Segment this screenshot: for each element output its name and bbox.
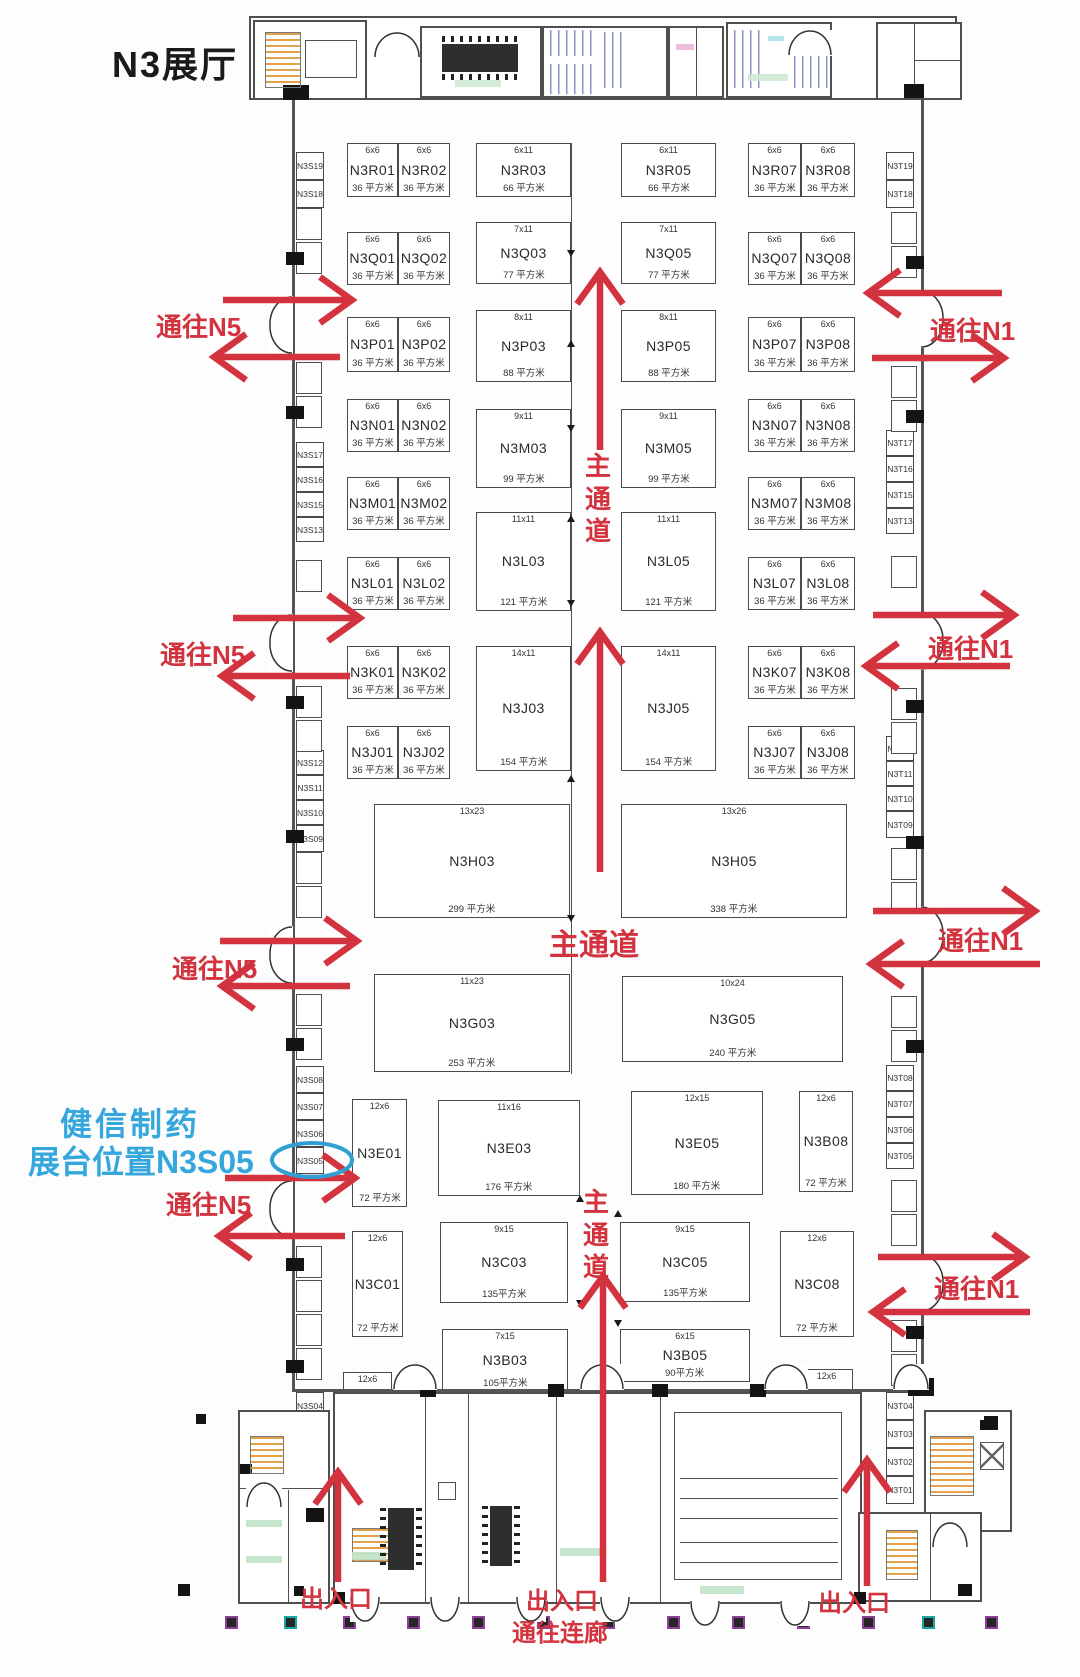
wall-block	[906, 1040, 924, 1053]
booth-area: 72 平方米	[805, 1179, 847, 1190]
booth-dim: 7x15	[495, 1330, 515, 1341]
side-booth-label: N3T10	[887, 794, 913, 804]
to-n5-2: 通往N5	[160, 640, 245, 671]
side-booth-label: N3S08	[297, 1075, 323, 1085]
arrow-main-aisle-lower	[553, 1226, 653, 1632]
side-booth-label: N3S16	[297, 475, 323, 485]
booth-n3g05: 10x24N3G05240 平方米	[622, 976, 843, 1062]
booth-area: 36 平方米	[403, 439, 445, 450]
side-booth-n3s15: N3S15	[296, 492, 324, 517]
side-booth-label: N3S17	[297, 450, 323, 460]
door-icon	[374, 32, 420, 58]
column-dot	[225, 1616, 238, 1629]
arrow-main-aisle-mid	[550, 582, 650, 922]
page-title: N3展厅	[112, 44, 238, 86]
door-icon	[764, 1364, 808, 1390]
booth-name: N3P05	[646, 338, 691, 354]
booth-dim: 6x6	[417, 727, 432, 738]
booth-area: 36 平方米	[754, 686, 796, 697]
booth-n3b08: 12x6N3B0872 平方米	[799, 1091, 853, 1192]
side-booth-label: N3T18	[887, 189, 913, 199]
side-booth-label: N3T15	[887, 490, 913, 500]
booth-name: N3M05	[645, 440, 692, 456]
side-booth-n3t19: N3T19	[886, 152, 914, 180]
side-booth-label: N3T05	[887, 1151, 913, 1161]
booth-name: N3C03	[481, 1254, 527, 1270]
booth-n3k07: 6x6N3K0736 平方米	[748, 646, 801, 699]
wall-block	[906, 836, 924, 849]
booth-dim: 6x6	[767, 400, 782, 411]
booth-n3e03: 11x16N3E03176 平方米	[438, 1100, 580, 1196]
booth-n3m08: 6x6N3M0836 平方米	[801, 477, 855, 530]
booth-n3c03: 9x15N3C03135平方米	[440, 1222, 568, 1303]
main-aisle-horizontal: 主通道	[549, 928, 639, 963]
booth-n3l07: 6x6N3L0736 平方米	[748, 557, 801, 610]
partition-line	[680, 1518, 838, 1519]
wall-room-left	[296, 852, 322, 884]
booth-area: 135平方米	[663, 1289, 707, 1300]
booth-dim: 6x6	[767, 558, 782, 569]
side-booth-label: N3T06	[887, 1125, 913, 1135]
booth-name: N3N02	[401, 417, 447, 433]
plan-detail	[768, 36, 784, 41]
plan-detail	[700, 1586, 744, 1594]
booth-dim: 6x6	[767, 727, 782, 738]
door-icon	[932, 1522, 968, 1548]
booth-name: N3B08	[804, 1133, 849, 1149]
side-booth-n3t07: N3T07	[886, 1091, 914, 1117]
booth-area: 36 平方米	[754, 439, 796, 450]
booth-name: N3P03	[501, 338, 546, 354]
booth-name: N3R08	[805, 162, 851, 178]
booth-area: 36 平方米	[807, 766, 849, 777]
booth-n3r02: 6x6N3R0236 平方米	[398, 143, 450, 197]
partition-line	[680, 1542, 838, 1543]
side-booth-label: N3T09	[887, 820, 913, 830]
side-booth-n3s17: N3S17	[296, 442, 324, 467]
booth-area: 36 平方米	[403, 766, 445, 777]
booth-dim: 6x6	[365, 233, 380, 244]
booth-area: 72 平方米	[357, 1324, 399, 1335]
booth-name: N3R01	[350, 162, 396, 178]
booth-area: 36 平方米	[403, 686, 445, 697]
booth-area: 36 平方米	[352, 439, 394, 450]
highlight-company: 健信制药	[60, 1106, 200, 1144]
booth-name: N3K07	[752, 664, 797, 680]
booth-name: N3N07	[752, 417, 798, 433]
chairs	[482, 1506, 488, 1566]
side-booth-label: N3S18	[297, 189, 323, 199]
side-booth-n3s11: N3S11	[296, 775, 324, 800]
booth-area: 66 平方米	[503, 184, 545, 195]
booth-name: N3L05	[647, 553, 690, 569]
booth-n3h05: 13x26N3H05338 平方米	[621, 804, 847, 918]
door-icon	[788, 30, 832, 56]
booth-n3n02: 6x6N3N0236 平方米	[398, 399, 450, 452]
side-booth-label: N3S19	[297, 161, 323, 171]
booth-name: N3J01	[351, 744, 393, 760]
booth-dim: 9x15	[494, 1223, 514, 1234]
side-booth-n3s19: N3S19	[296, 152, 324, 180]
side-booth-label: N3S11	[297, 783, 322, 793]
highlight-ellipse	[269, 1139, 355, 1181]
booth-area: 36 平方米	[754, 597, 796, 608]
side-booth-n3s16: N3S16	[296, 467, 324, 492]
partition-line	[696, 28, 697, 96]
to-n1-4: 通往N1	[934, 1274, 1019, 1305]
table	[490, 1506, 512, 1566]
booth-name: N3H05	[711, 853, 757, 869]
side-booth-n3s10: N3S10	[296, 800, 324, 825]
side-booth-label: N3S10	[297, 808, 323, 818]
side-booth-n3s18: N3S18	[296, 180, 324, 208]
booth-name: N3C05	[662, 1254, 708, 1270]
booth-dim: 12x6	[358, 1373, 378, 1384]
door-icon	[393, 1364, 437, 1390]
wall-block	[286, 1038, 304, 1051]
booth-name: N3G03	[449, 1015, 495, 1031]
booth-dim: 11x11	[657, 513, 680, 524]
booth-n3q02: 6x6N3Q0236 平方米	[398, 232, 450, 285]
booth-dim: 6x11	[659, 144, 678, 155]
staircase	[265, 32, 301, 88]
booth-dim: 14x11	[512, 647, 536, 658]
booth-dim: 9x11	[514, 410, 533, 421]
highlight-location: 展台位置N3S05	[28, 1144, 254, 1182]
wall-block	[906, 410, 924, 423]
side-booth-n3t16: N3T16	[886, 456, 914, 482]
booth-dim: 6x6	[365, 144, 380, 155]
side-booth-label: N3T16	[887, 464, 913, 474]
side-booth-n3t15: N3T15	[886, 482, 914, 508]
aisle-tick	[567, 515, 575, 522]
booth-area: 36 平方米	[807, 517, 849, 528]
booth-dim: 6x6	[821, 144, 836, 155]
booth-name: N3P02	[402, 336, 447, 352]
side-booth-label: N3T11	[888, 769, 913, 779]
wall-block	[652, 1384, 668, 1397]
booth-name: N3N01	[350, 417, 396, 433]
booth-dim: 13x26	[722, 805, 747, 816]
booth-name: N3J03	[502, 700, 544, 716]
booth-n3r07: 6x6N3R0736 平方米	[748, 143, 801, 197]
booth-dim: 8x11	[514, 311, 533, 322]
booth-area: 154 平方米	[500, 758, 547, 769]
column-dot	[732, 1616, 745, 1629]
booth-area: 36 平方米	[352, 184, 394, 195]
booth-dim: 6x6	[767, 647, 782, 658]
booth-area: 36 平方米	[754, 272, 796, 283]
booth-area: 77 平方米	[648, 271, 690, 282]
wall-block	[980, 1420, 992, 1430]
side-booth-label: N3S13	[297, 525, 323, 535]
booth-name: N3Q02	[401, 250, 447, 266]
booth-area: 36 平方米	[352, 517, 394, 528]
booth-dim: 12x6	[370, 1100, 390, 1111]
entrance-left: 出入口	[300, 1586, 372, 1614]
to-n5-4: 通往N5	[166, 1190, 251, 1221]
booth-area: 121 平方米	[500, 598, 547, 609]
partition-line	[425, 1394, 426, 1602]
plan-detail	[676, 44, 694, 50]
building-room	[438, 1482, 456, 1500]
booth-n3e05: 12x15N3E05180 平方米	[631, 1091, 763, 1195]
booth-area: 36 平方米	[754, 517, 796, 528]
booth-area: 77 平方米	[503, 271, 545, 282]
entrance-right: 出入口	[818, 1590, 890, 1618]
side-booth-n3t08: N3T08	[886, 1065, 914, 1091]
elevator	[980, 1442, 1004, 1470]
column-dot	[922, 1616, 935, 1629]
booth-name: N3H03	[449, 853, 495, 869]
booth-area: 154 平方米	[645, 758, 692, 769]
booth-dim: 6x6	[417, 647, 432, 658]
door-icon	[690, 1600, 720, 1626]
booth-n3b03: 7x15N3B03105平方米	[442, 1329, 568, 1392]
plan-detail	[246, 1520, 282, 1527]
side-booth-label: N3T19	[887, 161, 913, 171]
booth-n3j07: 6x6N3J0736 平方米	[748, 726, 801, 779]
plan-detail	[455, 80, 501, 87]
booth-area: 99 平方米	[503, 475, 545, 486]
booth-area: 176 平方米	[486, 1183, 533, 1194]
wall-block	[178, 1584, 190, 1596]
side-booth-label: N3S15	[297, 500, 323, 510]
wall-block	[286, 406, 304, 419]
booth-name: N3J05	[647, 700, 689, 716]
wall-room-right	[891, 722, 917, 754]
booth-name: N3E03	[487, 1140, 532, 1156]
booth-dim: 6x6	[417, 400, 432, 411]
booth-name: N3E05	[675, 1135, 720, 1151]
booth-area: 36 平方米	[754, 766, 796, 777]
booth-dim: 6x6	[417, 318, 432, 329]
booth-dim: 6x6	[767, 478, 782, 489]
side-booth-n3t17: N3T17	[886, 430, 914, 456]
chairs	[514, 1506, 520, 1566]
booth-name: N3Q03	[500, 245, 546, 261]
booth-n3m02: 6x6N3M0236 平方米	[398, 477, 450, 530]
main-aisle-upper: 主通道	[585, 450, 613, 548]
booth-dim: 9x15	[675, 1223, 695, 1234]
booth-dim: 6x15	[675, 1330, 695, 1341]
side-booth-label: N3T17	[887, 438, 913, 448]
arrow-n5-3-out	[172, 936, 400, 1036]
table	[442, 44, 518, 72]
booth-n3r08: 6x6N3R0836 平方米	[801, 143, 855, 197]
partition-line	[680, 1478, 838, 1479]
booth-area: 36 平方米	[754, 184, 796, 195]
wall-block	[196, 1414, 206, 1424]
booth-name: N3R05	[646, 162, 692, 178]
booth-dim: 11x11	[512, 513, 535, 524]
booth-area: 253 平方米	[449, 1059, 496, 1070]
booth-dim: 10x24	[720, 977, 745, 988]
restroom-stalls	[550, 30, 594, 56]
booth-name: N3J02	[403, 744, 445, 760]
entrance-center: 出入口	[526, 1588, 598, 1616]
booth-n3r03: 6x11N3R0366 平方米	[476, 143, 571, 197]
booth-name: N3Q05	[645, 245, 691, 261]
floor-plan-n3: 6x6N3R0136 平方米6x6N3R0236 平方米6x11N3R0366 …	[0, 0, 1080, 1677]
side-booth-n3t06: N3T06	[886, 1117, 914, 1143]
side-booth-n3s13: N3S13	[296, 517, 324, 542]
staircase	[930, 1436, 974, 1496]
side-booth-label: N3S04	[297, 1401, 323, 1411]
booth-area: 338 平方米	[711, 905, 758, 916]
wall-room-right	[891, 212, 917, 244]
booth-dim: 6x6	[417, 478, 432, 489]
booth-dim: 12x6	[807, 1232, 827, 1243]
door-icon	[430, 1596, 460, 1622]
wall-block	[286, 1360, 304, 1373]
booth-name: N3M03	[500, 440, 547, 456]
booth-dim: 8x11	[659, 311, 678, 322]
column-dot	[472, 1616, 485, 1629]
to-n1-1: 通往N1	[930, 316, 1015, 347]
arrow-n1-2-out	[816, 616, 1060, 716]
wall-room-left	[296, 1314, 322, 1346]
wall-block	[904, 84, 924, 98]
door-icon	[893, 1364, 929, 1390]
partition-line	[680, 1562, 838, 1563]
plan-detail	[748, 74, 788, 81]
booth-name: N3B05	[663, 1347, 708, 1363]
side-booth-n3s07: N3S07	[296, 1093, 324, 1120]
booth-dim: 6x6	[417, 144, 432, 155]
booth-area: 90平方米	[665, 1369, 704, 1380]
booth-dim: 11x16	[497, 1101, 521, 1112]
booth-area: 36 平方米	[807, 184, 849, 195]
side-booth-n3t18: N3T18	[886, 180, 914, 208]
side-booth-label: N3S07	[297, 1102, 323, 1112]
building-room	[305, 40, 357, 78]
booth-n3n07: 6x6N3N0736 平方米	[748, 399, 801, 452]
booth-area: 66 平方米	[648, 184, 690, 195]
booth-name: N3M07	[751, 495, 798, 511]
booth-dim: 6x6	[767, 233, 782, 244]
corridor-link: 通往连廊	[512, 1620, 608, 1648]
booth-n3p02: 6x6N3P0236 平方米	[398, 317, 450, 372]
side-booth-n3t11: N3T11	[886, 761, 914, 786]
booth-area: 299 平方米	[449, 905, 496, 916]
booth-dim: 12x6	[816, 1092, 836, 1103]
restroom-stalls	[550, 64, 594, 94]
booth-name: N3M02	[400, 495, 447, 511]
side-booth-n3t13: N3T13	[886, 508, 914, 534]
side-booth-n3s12: N3S12	[296, 750, 324, 775]
side-booth-label: N3T08	[887, 1073, 913, 1083]
door-icon	[246, 1482, 282, 1508]
booth-name: N3P07	[752, 336, 797, 352]
booth-area: 180 平方米	[674, 1182, 721, 1193]
side-booth-label: N3T13	[887, 516, 913, 526]
main-aisle-lower: 主通道	[583, 1186, 611, 1284]
partition-line	[914, 60, 962, 61]
booth-n3p07: 6x6N3P0736 平方米	[748, 317, 801, 372]
partition-line	[660, 1394, 661, 1602]
to-n1-3: 通往N1	[938, 926, 1023, 957]
booth-dim: 12x15	[685, 1092, 710, 1103]
plan-detail	[246, 1556, 282, 1563]
booth-dim: 6x11	[514, 144, 533, 155]
table	[388, 1508, 414, 1570]
booth-n3r01: 6x6N3R0136 平方米	[347, 143, 398, 197]
booth-dim: 6x6	[417, 558, 432, 569]
column-dot	[985, 1616, 998, 1629]
booth-dim: 12x6	[817, 1370, 837, 1381]
booth-n3j02: 6x6N3J0236 平方米	[398, 726, 450, 779]
booth-n3r05: 6x11N3R0566 平方米	[621, 143, 716, 197]
booth-dim: 14x11	[657, 647, 681, 658]
aisle-tick	[614, 1210, 622, 1217]
side-booth-label: N3T07	[887, 1099, 913, 1109]
booth-name: N3J08	[807, 744, 849, 760]
restroom-stalls	[604, 32, 622, 88]
column-dot	[407, 1616, 420, 1629]
side-booth-n3t09: N3T09	[886, 811, 914, 838]
partition-line	[680, 1498, 838, 1499]
booth-area: 240 平方米	[709, 1049, 756, 1060]
booth-name: N3J07	[753, 744, 795, 760]
side-booth-label: N3S12	[297, 758, 323, 768]
booth-area: 88 平方米	[648, 369, 690, 380]
booth-name: N3R03	[501, 162, 547, 178]
booth-n3j08: 6x6N3J0836 平方米	[801, 726, 855, 779]
staircase	[250, 1436, 284, 1474]
booth-area: 88 平方米	[503, 369, 545, 380]
booth-name: N3R02	[401, 162, 447, 178]
booth-area: 36 平方米	[403, 272, 445, 283]
booth-area: 36 平方米	[403, 359, 445, 370]
booth-dim: 9x11	[659, 410, 678, 421]
booth-area: 36 平方米	[352, 766, 394, 777]
booth-name: N3G05	[709, 1011, 755, 1027]
to-n5-1: 通往N5	[156, 312, 241, 343]
booth-area: 121 平方米	[645, 598, 692, 609]
side-booth-n3s08: N3S08	[296, 1066, 324, 1093]
booth-dim: 6x6	[821, 727, 836, 738]
booth-n3m01: 6x6N3M0136 平方米	[347, 477, 398, 530]
side-booth-n3t10: N3T10	[886, 786, 914, 811]
booth-n3m07: 6x6N3M0736 平方米	[748, 477, 801, 530]
booth-name: N3N08	[805, 417, 851, 433]
booth-n3j01: 6x6N3J0136 平方米	[347, 726, 398, 779]
to-n1-2: 通往N1	[928, 634, 1013, 665]
booth-dim: 7x11	[514, 223, 533, 234]
booth-dim: 6x6	[365, 727, 380, 738]
booth-name: N3M08	[804, 495, 851, 511]
booth-dim: 6x6	[365, 478, 380, 489]
column-dot	[667, 1616, 680, 1629]
chairs	[442, 74, 518, 80]
booth-name: N3L03	[502, 553, 545, 569]
booth-area: 36 平方米	[754, 359, 796, 370]
booth-area: 36 平方米	[807, 439, 849, 450]
booth-dim: 6x6	[767, 318, 782, 329]
side-booth-n3t05: N3T05	[886, 1143, 914, 1169]
booth-name: N3R07	[752, 162, 798, 178]
booth-dim: 6x6	[821, 478, 836, 489]
booth-dim: 6x6	[767, 144, 782, 155]
wall-room-left	[296, 208, 322, 240]
booth-area: 135平方米	[482, 1290, 526, 1301]
partition-line	[468, 1394, 469, 1602]
wall-block	[958, 1584, 972, 1596]
booth-area: 36 平方米	[403, 184, 445, 195]
door-icon	[780, 1600, 810, 1626]
booth-name: N3B03	[483, 1352, 528, 1368]
